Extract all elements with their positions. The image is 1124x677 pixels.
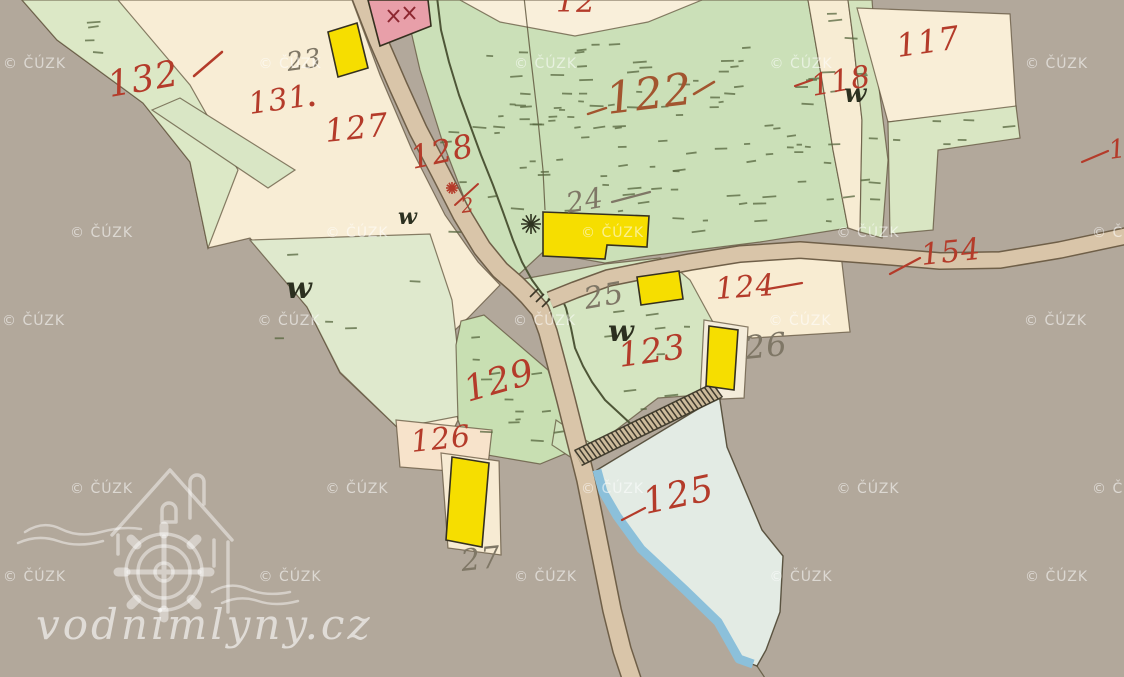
meadow-dash bbox=[673, 170, 679, 172]
meadow-dash bbox=[797, 144, 802, 146]
meadow-dash bbox=[671, 189, 678, 191]
parcel-label-23: 23 bbox=[284, 43, 324, 78]
meadow-dash bbox=[703, 220, 708, 222]
meadow-dash bbox=[459, 181, 466, 183]
meadow-dash bbox=[710, 97, 720, 99]
meadow-dash bbox=[684, 326, 690, 328]
meadow-dash bbox=[753, 202, 766, 204]
meadow-dash bbox=[486, 55, 493, 57]
parcel-label-27: 27 bbox=[458, 540, 503, 579]
label-dot bbox=[310, 102, 315, 107]
meadow-dash bbox=[794, 151, 803, 153]
meadow-dash bbox=[559, 109, 565, 111]
meadow-dash bbox=[554, 107, 562, 109]
meadow-dash bbox=[591, 44, 599, 46]
building-26 bbox=[706, 326, 738, 390]
meadow-dash bbox=[530, 160, 536, 162]
meadow-dash bbox=[515, 411, 523, 413]
meadow-dash bbox=[715, 148, 727, 150]
parcel-label-26: 26 bbox=[742, 325, 789, 367]
meadow-dash bbox=[933, 120, 942, 122]
building-27 bbox=[446, 457, 489, 547]
meadow-w-symbol: w bbox=[286, 271, 313, 306]
parcel-label-154: 154 bbox=[919, 232, 983, 273]
meadow-dash bbox=[787, 146, 794, 148]
meadow-dash bbox=[710, 106, 719, 108]
meadow-dash bbox=[275, 337, 284, 339]
meadow-dash bbox=[325, 321, 333, 323]
meadow-dash bbox=[602, 184, 609, 186]
parcel-label-12: 12 bbox=[556, 0, 596, 20]
meadow-dash bbox=[618, 146, 627, 148]
parcel-label-122: 122 bbox=[603, 64, 696, 125]
meadow-dash bbox=[721, 60, 734, 62]
parcel-label-24: 24 bbox=[563, 181, 607, 220]
parcel-label-124: 124 bbox=[714, 268, 777, 307]
meadow-dash bbox=[600, 175, 607, 177]
meadow-dash bbox=[508, 421, 519, 423]
parcel-label-127: 127 bbox=[323, 105, 391, 149]
meadow-dash bbox=[798, 181, 807, 183]
map-viewport[interactable]: wwww132131127128122117118154124123129126… bbox=[0, 0, 1124, 677]
meadow-dash bbox=[650, 166, 656, 168]
meadow-dash bbox=[520, 118, 530, 120]
meadow-dash bbox=[640, 408, 646, 410]
cadastral-map: wwww132131127128122117118154124123129126… bbox=[0, 0, 1124, 677]
parcel-label-25: 25 bbox=[580, 275, 627, 317]
meadow-dash bbox=[85, 39, 95, 41]
meadow-dash bbox=[538, 174, 551, 176]
meadow-dash bbox=[345, 327, 357, 329]
meadow-dash bbox=[530, 123, 542, 125]
meadow-dash bbox=[869, 137, 878, 139]
meadow-dash bbox=[519, 51, 528, 53]
meadow-dash bbox=[693, 80, 698, 82]
meadow-dash bbox=[541, 171, 549, 173]
meadow-dash bbox=[567, 116, 574, 118]
parcel-label-126: 126 bbox=[409, 419, 473, 460]
meadow-dash bbox=[579, 93, 587, 95]
meadow-w-symbol: w bbox=[398, 204, 418, 230]
meadow-dash bbox=[719, 71, 729, 73]
meadow-dash bbox=[827, 13, 837, 15]
meadow-dash bbox=[943, 143, 950, 145]
meadow-dash bbox=[828, 143, 840, 145]
meadow-dash bbox=[562, 93, 572, 95]
building-25 bbox=[637, 271, 683, 305]
meadow-dash bbox=[958, 139, 967, 141]
meadow-dash bbox=[551, 74, 565, 76]
meadow-dash bbox=[510, 103, 516, 105]
meadow-dash bbox=[744, 143, 750, 145]
parcel-label-1: 1 bbox=[1107, 134, 1124, 166]
